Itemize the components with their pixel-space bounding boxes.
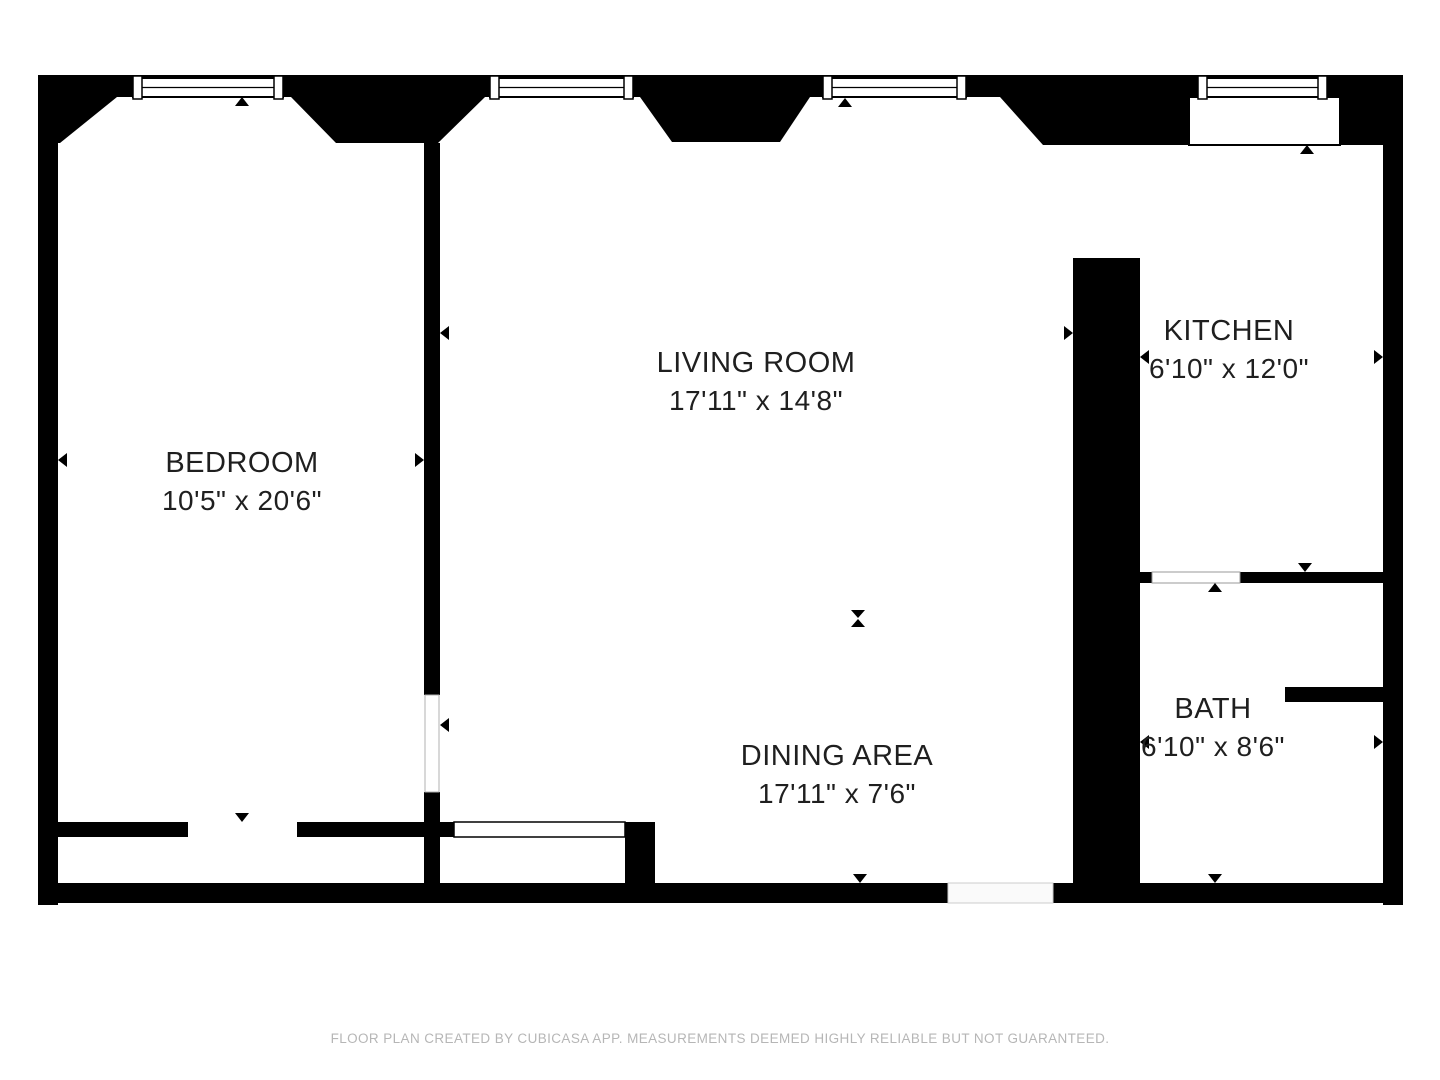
- wall-closet-divider: [625, 822, 655, 903]
- bedroom-bottom-door-opening: [188, 822, 297, 837]
- room-name: LIVING ROOM: [657, 344, 856, 382]
- wall-left: [38, 75, 58, 905]
- wall-kitchen-bath-divider-left: [1140, 572, 1152, 583]
- window-living-right-icon: [823, 76, 966, 99]
- living-room-label: LIVING ROOM 17'11" x 14'8": [657, 344, 856, 420]
- kitchen-label: KITCHEN 6'10" x 12'0": [1149, 312, 1309, 388]
- bath-door-opening: [1152, 572, 1240, 583]
- floor-plan-page: BEDROOM 10'5" x 20'6" LIVING ROOM 17'11"…: [0, 0, 1440, 1080]
- dimension-arrow-down-dining-icon: [853, 874, 867, 883]
- wall-bedroom-bottom-left: [58, 822, 188, 837]
- wall-right: [1383, 75, 1403, 905]
- room-dimensions: 10'5" x 20'6": [162, 482, 322, 520]
- wall-bottom-left: [38, 883, 948, 903]
- top-wall-reveals: [58, 97, 1383, 145]
- wall-chamfer-bedroom-right: [291, 97, 485, 143]
- footer-disclaimer: FLOOR PLAN CREATED BY CUBICASA APP. MEAS…: [0, 1031, 1440, 1046]
- wall-kitchen-bath-column: [1073, 258, 1140, 903]
- dimension-arrow-up-bedroom-icon: [235, 97, 249, 106]
- room-dimensions: 6'10" x 8'6": [1141, 728, 1285, 766]
- bedroom-door-opening: [425, 695, 439, 792]
- room-dimensions: 17'11" x 7'6": [741, 775, 933, 813]
- dimension-split-marker-down-icon: [851, 610, 865, 618]
- dimension-split-marker-up-icon: [851, 619, 865, 627]
- room-dimensions: 17'11" x 14'8": [657, 382, 856, 420]
- dimension-arrow-down-bedroom-icon: [235, 813, 249, 822]
- window-bedroom-icon: [133, 76, 283, 99]
- dimension-arrow-right-bedroom-icon: [415, 453, 424, 467]
- dimension-arrow-bedroom-door-icon: [440, 718, 449, 732]
- bedroom-label: BEDROOM 10'5" x 20'6": [162, 444, 322, 520]
- dimension-arrow-right-living-icon: [1064, 326, 1073, 340]
- wall-chamfer-bedroom-left: [58, 97, 117, 143]
- bath-label: BATH 6'10" x 8'6": [1141, 690, 1285, 766]
- room-name: DINING AREA: [741, 737, 933, 775]
- wall-bath-stub: [1285, 687, 1383, 702]
- cased-opening-dining: [454, 822, 625, 837]
- dimension-arrow-down-bath-icon: [1208, 874, 1222, 883]
- dimension-arrow-up-bath-icon: [1208, 583, 1222, 592]
- dimension-arrow-up-living-icon: [838, 98, 852, 107]
- window-kitchen-icon: [1198, 76, 1327, 99]
- wall-bedroom-living-lower: [424, 792, 440, 903]
- room-name: BATH: [1141, 690, 1285, 728]
- kitchen-bump-out: [1189, 97, 1340, 145]
- dimension-arrow-up-kitchen-icon: [1300, 145, 1314, 154]
- dimension-arrow-right-bath-icon: [1374, 735, 1383, 749]
- wall-kitchen-bath-divider-right: [1240, 572, 1383, 583]
- dimension-arrow-left-living-icon: [440, 326, 449, 340]
- room-dimensions: 6'10" x 12'0": [1149, 350, 1309, 388]
- wall-bedroom-living-upper: [424, 143, 440, 695]
- room-name: KITCHEN: [1149, 312, 1309, 350]
- interior-walls: [58, 143, 1383, 903]
- wall-pillar-living-room: [640, 97, 810, 142]
- wall-bedroom-bottom-right: [297, 822, 454, 837]
- entry-door-opening: [948, 883, 1053, 903]
- dimension-arrow-left-kitchen-icon: [1140, 350, 1149, 364]
- dimension-arrow-left-bedroom-icon: [58, 453, 67, 467]
- window-living-left-icon: [490, 76, 633, 99]
- dimension-arrow-right-kitchen-icon: [1374, 350, 1383, 364]
- floor-plan-canvas: [0, 0, 1440, 1080]
- room-name: BEDROOM: [162, 444, 322, 482]
- dining-area-label: DINING AREA 17'11" x 7'6": [741, 737, 933, 813]
- dimension-arrow-down-kitchen-icon: [1298, 563, 1312, 572]
